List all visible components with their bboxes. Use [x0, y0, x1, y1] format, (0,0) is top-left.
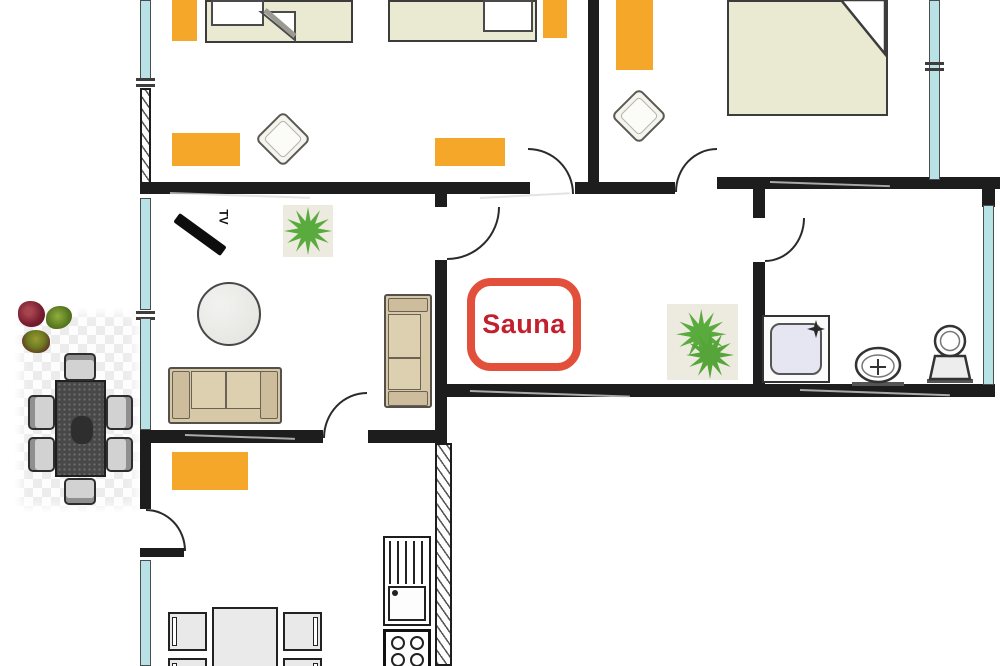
- flowers-icon: [18, 301, 45, 327]
- chair-icon: [283, 658, 322, 666]
- chair-icon: [28, 437, 55, 472]
- tv-label: TV: [217, 209, 231, 224]
- rug-icon: [616, 0, 653, 70]
- window: [140, 198, 151, 310]
- window: [929, 0, 940, 180]
- door-arc: [323, 392, 367, 438]
- door-jamb: [140, 548, 184, 557]
- burner-icon: [410, 636, 424, 650]
- window: [983, 205, 994, 385]
- rug-icon: [172, 0, 197, 41]
- bed-icon: [205, 0, 353, 43]
- door-arc: [447, 207, 500, 260]
- window-tick: [136, 311, 155, 314]
- floor-plan: TV Sauna: [0, 0, 1000, 666]
- chair-icon: [106, 437, 133, 472]
- wall: [435, 194, 447, 207]
- wall: [140, 88, 151, 186]
- rug-icon: [435, 138, 505, 166]
- flowers-icon: [22, 330, 50, 353]
- window-tick: [136, 78, 155, 81]
- door-arc: [528, 148, 574, 194]
- sink-basin-icon: [388, 586, 426, 621]
- wall: [717, 177, 1000, 189]
- burner-icon: [410, 653, 424, 666]
- toilet-icon: [926, 324, 974, 384]
- chair-icon: [64, 478, 96, 505]
- dining-table-icon: [55, 380, 106, 477]
- wall: [435, 443, 452, 666]
- bed-icon: [388, 0, 537, 42]
- plant-icon: [667, 304, 738, 380]
- window: [140, 0, 151, 80]
- plant-icon: [283, 205, 333, 257]
- sofa-icon: [168, 367, 282, 424]
- burner-icon: [391, 636, 405, 650]
- wall: [753, 189, 765, 218]
- pouf-icon: [611, 88, 668, 145]
- window: [140, 560, 151, 666]
- faucet-icon: [392, 590, 398, 596]
- blanket-fold-icon: [205, 0, 353, 43]
- burner-icon: [391, 653, 405, 666]
- pouf-icon: [255, 111, 312, 168]
- window: [140, 318, 151, 430]
- chair-icon: [106, 395, 133, 430]
- shower-sparkle-icon: [806, 319, 826, 339]
- window-tick: [925, 62, 944, 65]
- bed-icon: [727, 0, 888, 116]
- shower-icon: [762, 315, 830, 383]
- armchair-icon: [384, 294, 432, 408]
- chair-icon: [283, 612, 322, 651]
- rug-icon: [543, 0, 567, 38]
- door-arc: [146, 509, 186, 551]
- sauna-sign: Sauna: [467, 278, 581, 371]
- kitchen-sink-icon: [383, 536, 431, 626]
- sink-icon: [850, 346, 906, 388]
- chair-icon: [168, 658, 207, 666]
- wall: [435, 260, 447, 445]
- drainboard-icon: [389, 541, 426, 584]
- chair-icon: [168, 612, 207, 651]
- round-table-icon: [197, 282, 261, 346]
- kitchen-table-icon: [212, 607, 278, 666]
- door-arc: [675, 148, 717, 192]
- chair-icon: [64, 353, 96, 381]
- stove-icon: [383, 629, 431, 666]
- door-arc: [765, 218, 805, 262]
- sauna-label: Sauna: [482, 309, 566, 340]
- wall: [368, 430, 447, 443]
- pillow-icon: [483, 0, 533, 32]
- wall: [140, 443, 151, 509]
- wall: [982, 177, 995, 207]
- chair-icon: [28, 395, 55, 430]
- blanket-fold-icon: [727, 0, 888, 116]
- wall: [588, 0, 599, 194]
- rug-icon: [172, 133, 240, 166]
- rug-icon: [172, 452, 248, 490]
